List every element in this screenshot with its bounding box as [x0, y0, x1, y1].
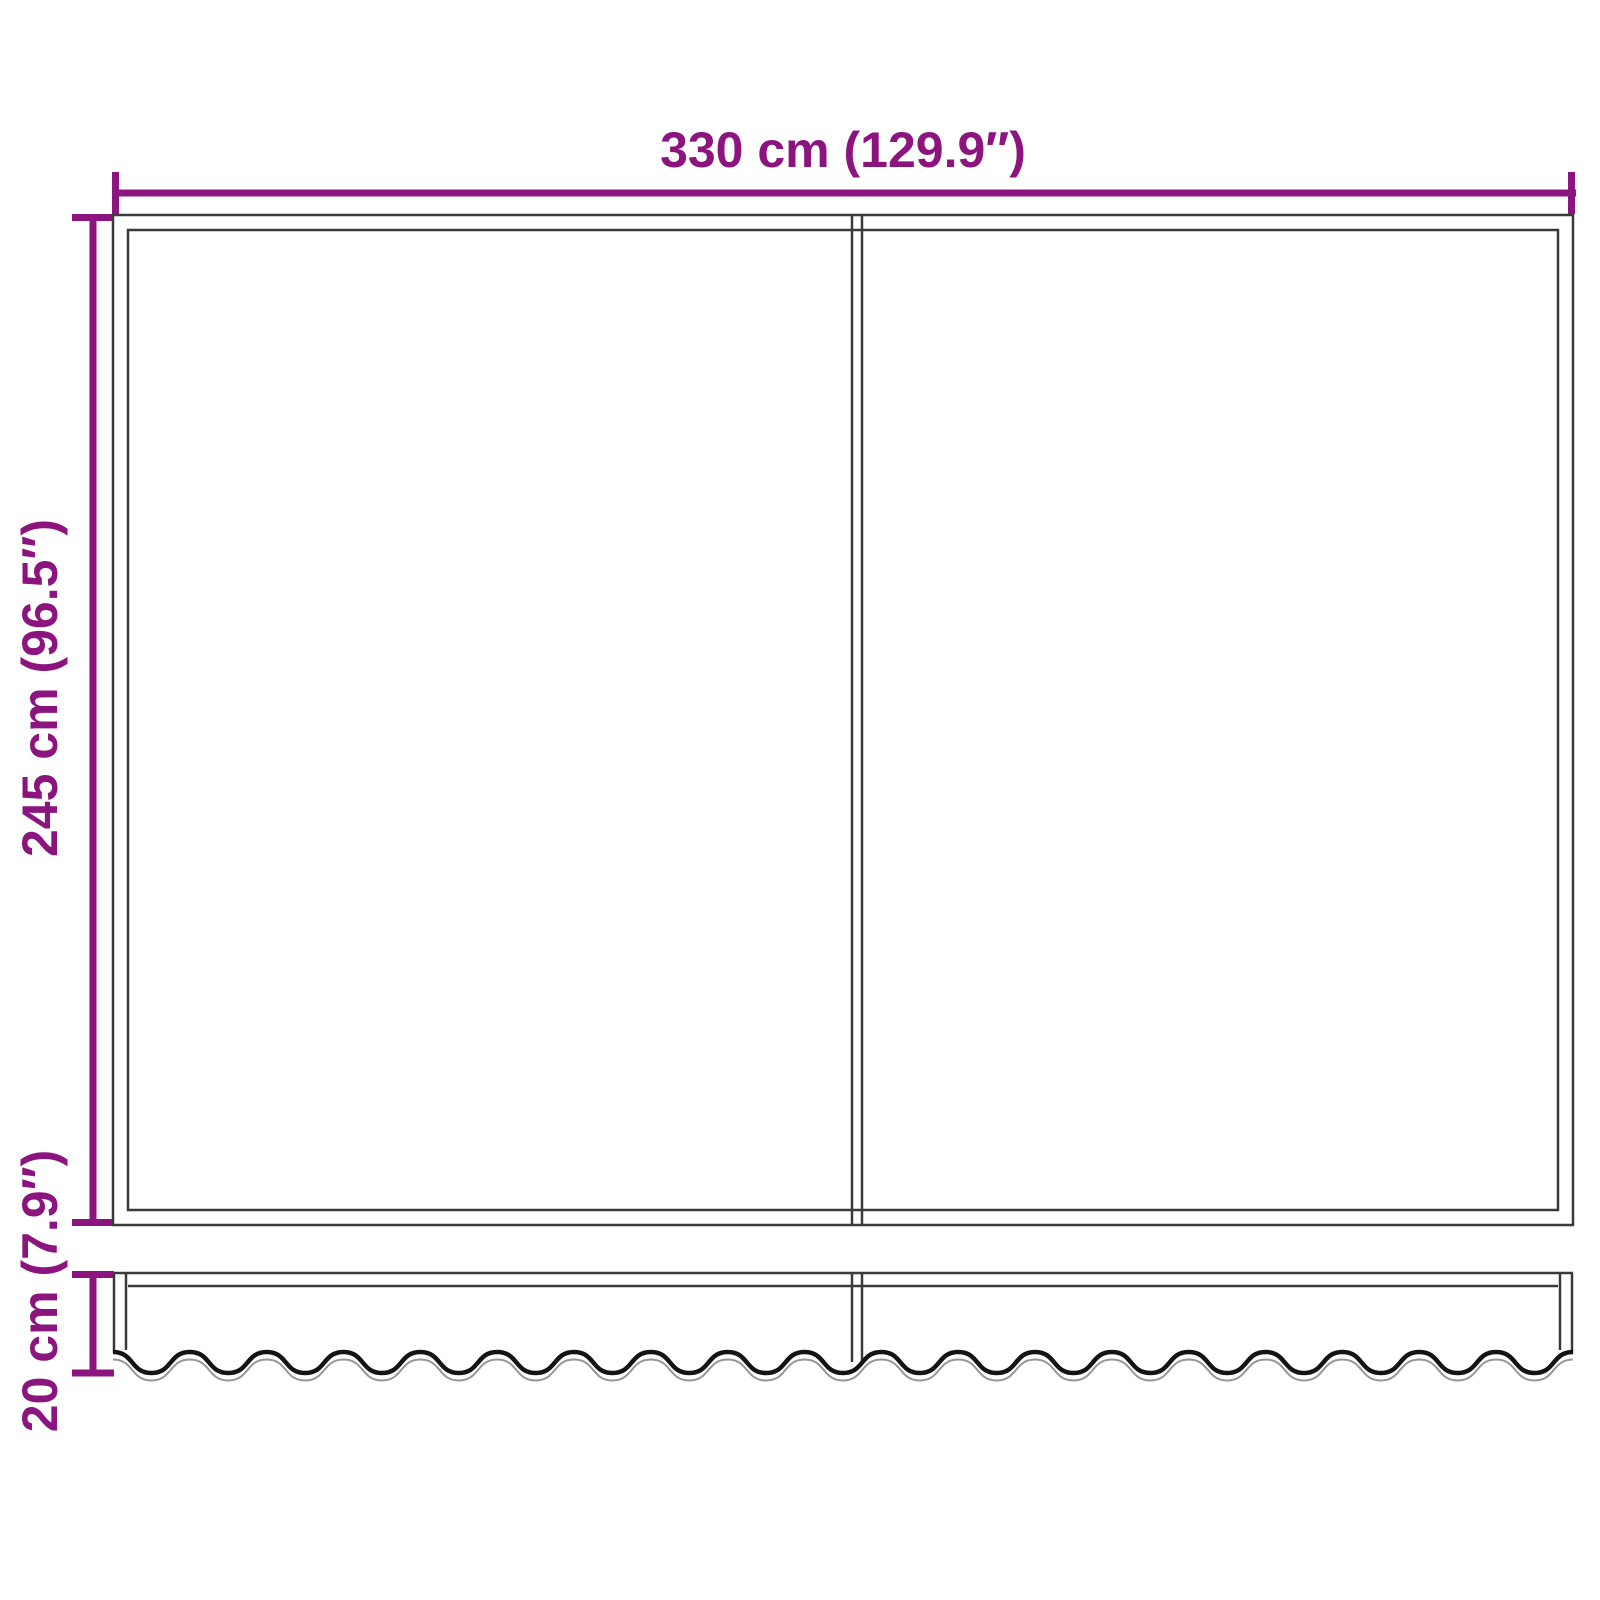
width-dimension: 330 cm (129.9″) [112, 122, 1576, 214]
height-dimension-label: 245 cm (96.5″) [12, 519, 68, 857]
valance-strip [113, 1273, 1573, 1381]
diagram-svg: 330 cm (129.9″) 245 cm (96.5″) 20 cm (7.… [0, 0, 1600, 1600]
panel-inner-hem-line [128, 230, 1558, 1210]
valance-scallop-echo-line [113, 1360, 1573, 1381]
product-dimension-diagram: 330 cm (129.9″) 245 cm (96.5″) 20 cm (7.… [0, 0, 1600, 1600]
valance-height-dimension-label: 20 cm (7.9″) [12, 1150, 68, 1432]
height-dimension: 245 cm (96.5″) [12, 214, 114, 1226]
awning-fabric-panel [113, 215, 1573, 1225]
valance-height-dimension: 20 cm (7.9″) [12, 1150, 114, 1432]
width-dimension-label: 330 cm (129.9″) [660, 122, 1026, 178]
panel-outer-outline [113, 215, 1573, 1225]
